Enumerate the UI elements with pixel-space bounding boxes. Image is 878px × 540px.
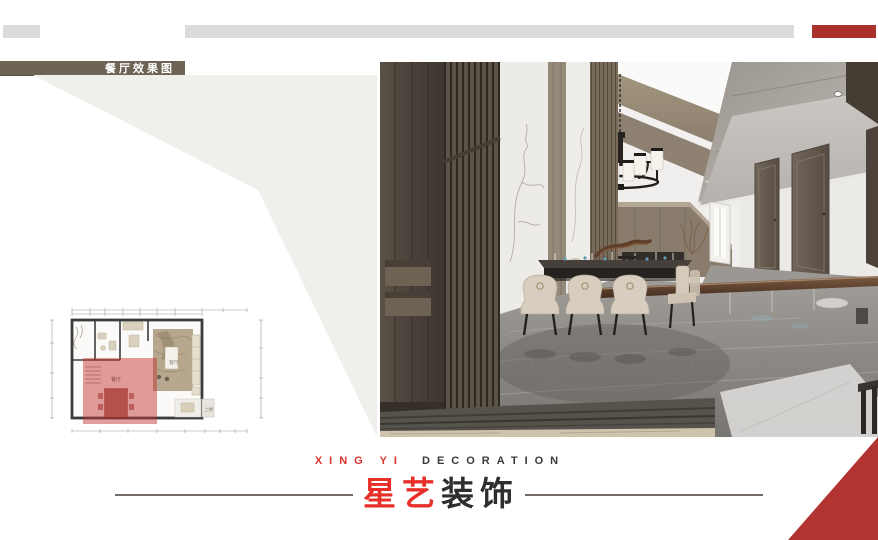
deco-bar-red [812, 25, 876, 38]
dining-room-photo [380, 62, 878, 437]
slat-screen [444, 62, 500, 412]
brand-en-dark: DECORATION [422, 455, 565, 467]
dining-room-scene [380, 62, 878, 437]
plan-label-dining: 餐厅 [111, 376, 121, 383]
deco-bar-small [3, 25, 40, 38]
brand-english-line: XING YIDECORATION [255, 455, 625, 467]
door-far [755, 158, 779, 276]
door-near [792, 144, 829, 280]
wood-cabinet [380, 62, 444, 416]
floor-plan: 餐厅 客厅 上楼 [45, 303, 267, 438]
brand-chinese-line: 星艺装饰 [300, 467, 582, 515]
brand-zh-red: 星艺 [363, 475, 441, 512]
plan-label-stairs: 上楼 [204, 406, 213, 413]
section-title-badge: 餐厅效果图 [0, 61, 185, 76]
corner-triangle [788, 437, 878, 540]
divider-left [115, 494, 353, 496]
deco-bar-long [185, 25, 794, 38]
red-highlight-overlay [83, 358, 157, 424]
brand-zh-dark: 装饰 [441, 475, 519, 512]
floor-plan-drawing: 餐厅 客厅 上楼 [45, 303, 267, 438]
window [710, 202, 730, 264]
presentation-slide: 餐厅效果图 [0, 0, 878, 540]
door-edge [866, 126, 878, 268]
divider-right [525, 494, 763, 496]
brand-en-red: XING YI [315, 455, 404, 467]
plan-label-living: 客厅 [169, 359, 179, 366]
